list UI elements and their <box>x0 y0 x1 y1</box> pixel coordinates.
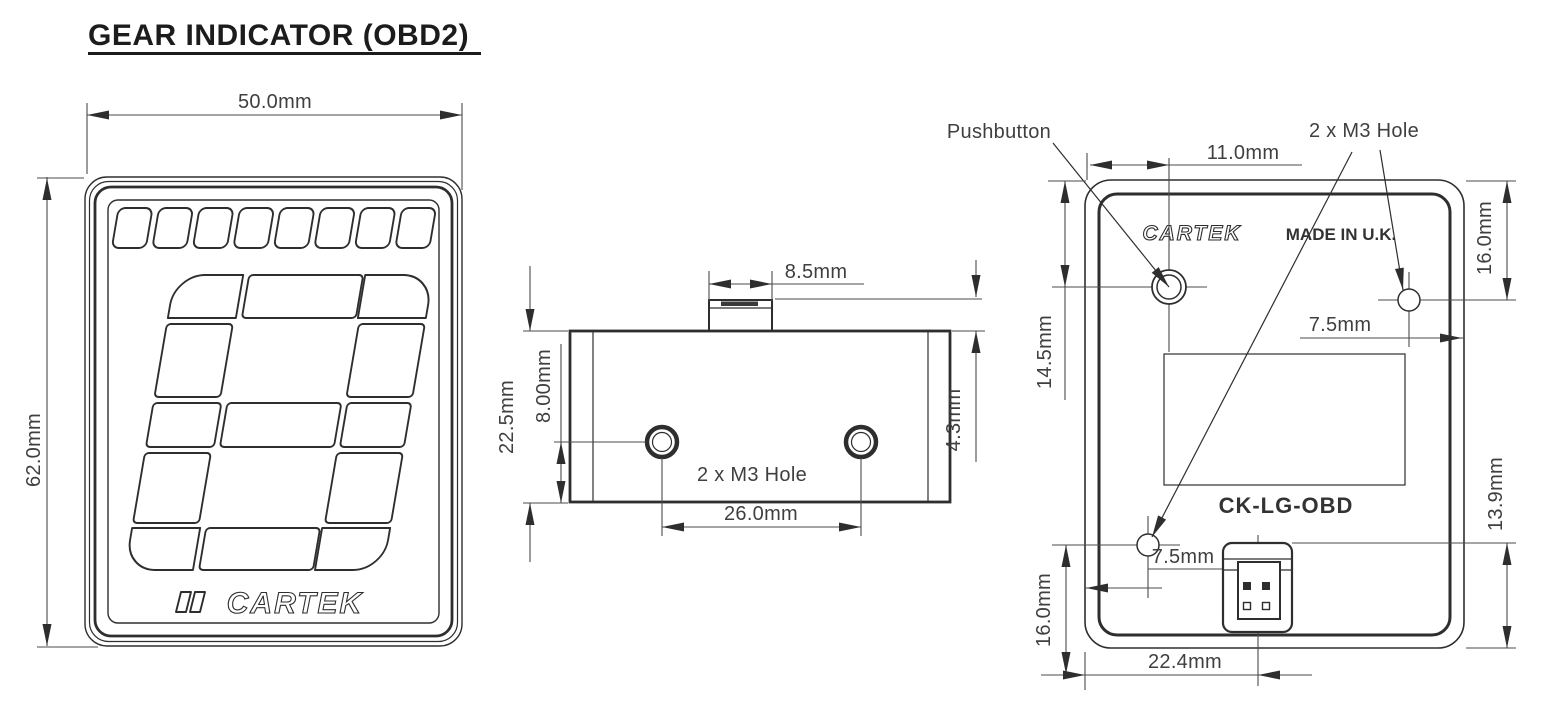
front-view: CARTEK 50.0mm 62.0mm <box>23 91 462 647</box>
connector-pin <box>1262 582 1270 590</box>
led-1 <box>112 208 153 248</box>
pushbutton-label: Pushbutton <box>947 121 1051 143</box>
back-connector-height-dim: 13.9mm <box>1485 457 1507 531</box>
back-bottom-hole-edge-dim: 7.5mm <box>1152 546 1215 568</box>
back-pushbutton-x-dim: 11.0mm <box>1207 142 1280 164</box>
side-connector-slot <box>721 302 758 307</box>
led-3 <box>193 208 234 248</box>
gear-indicator-drawing: GEAR INDICATOR (OBD2) <box>0 0 1544 712</box>
back-connector-x-dim: 22.4mm <box>1148 651 1222 673</box>
back-bottom-hole-y-dim: 16.0mm <box>1033 573 1055 647</box>
back-holes-label: 2 x M3 Hole <box>1309 120 1419 142</box>
segment-top-right <box>358 275 433 318</box>
back-pushbutton-y-dim: 14.5mm <box>1034 315 1056 389</box>
connector-pin <box>1244 603 1251 610</box>
front-logo-text: CARTEK <box>227 587 364 620</box>
side-view: 2 x M3 Hole 8.5mm 4.3mm 22.5mm 8.00mm <box>496 260 985 562</box>
segment-middle <box>220 403 341 447</box>
back-right-hole-top-dim: 16.0mm <box>1474 201 1496 275</box>
back-view: CARTEK MADE IN U.K. CK-LG-OBD <box>947 120 1516 690</box>
back-connector <box>1223 535 1292 686</box>
connector-pin <box>1263 603 1270 610</box>
segment-middle-left <box>146 403 221 447</box>
back-made-in-text: MADE IN U.K. <box>1286 225 1397 244</box>
segment-middle-right <box>340 403 411 447</box>
segment-top <box>242 275 363 318</box>
led-4 <box>233 208 274 248</box>
connector-socket <box>1238 562 1280 619</box>
back-brand-text: CARTEK <box>1142 222 1241 245</box>
segment-lower-left <box>133 453 211 523</box>
front-height-dim: 62.0mm <box>23 413 45 487</box>
led-8 <box>395 208 436 248</box>
side-hole-spacing-dim: 26.0mm <box>724 503 798 525</box>
led-7 <box>355 208 396 248</box>
side-holes-label: 2 x M3 Hole <box>697 464 807 486</box>
segment-bottom <box>199 528 320 570</box>
drawing-title: GEAR INDICATOR (OBD2) <box>88 19 469 52</box>
side-hole-offset-dim: 8.00mm <box>533 349 555 423</box>
led-6 <box>314 208 355 248</box>
segment-upper-left <box>154 324 232 397</box>
segment-upper-right <box>346 324 424 397</box>
segment-lower-right <box>325 453 403 523</box>
segment-bottom-left <box>125 528 200 570</box>
title-underline <box>88 52 481 55</box>
side-body-height-dim: 22.5mm <box>496 380 518 454</box>
connector-pin <box>1243 582 1251 590</box>
back-m3-hole-right <box>1398 289 1420 311</box>
front-width-dim: 50.0mm <box>238 91 312 113</box>
side-tab-width-dim: 8.5mm <box>785 261 848 283</box>
back-right-hole-edge-dim: 7.5mm <box>1309 314 1372 336</box>
technical-drawing-page: GEAR INDICATOR (OBD2) <box>0 0 1544 712</box>
back-model-text: CK-LG-OBD <box>1219 493 1354 518</box>
side-m3-hole-right-inner <box>852 433 871 452</box>
led-5 <box>274 208 315 248</box>
side-tab-height-dim: 4.3mm <box>943 389 965 452</box>
led-2 <box>152 208 193 248</box>
side-m3-hole-left-inner <box>653 433 672 452</box>
